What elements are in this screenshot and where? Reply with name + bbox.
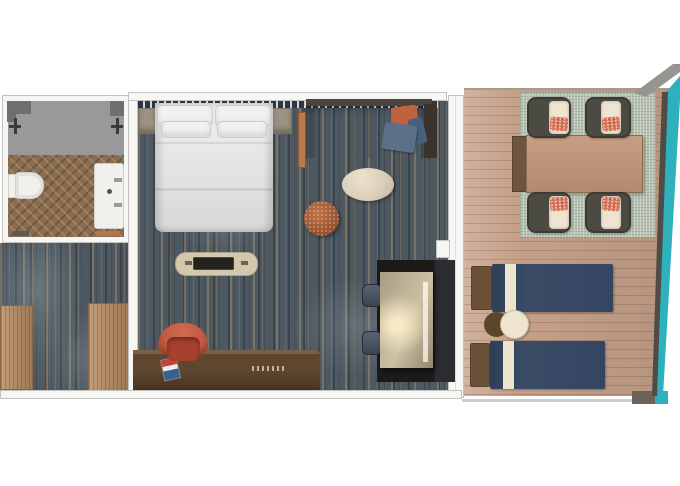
side-table-cream bbox=[500, 310, 529, 339]
vanity-drain bbox=[107, 189, 112, 194]
nook-chair-lower bbox=[362, 331, 382, 355]
nightstand-left bbox=[138, 108, 156, 134]
balcony-dining-table bbox=[526, 135, 643, 193]
railing-base-teal bbox=[655, 391, 668, 404]
deck-edge-line bbox=[462, 399, 634, 402]
sofa-dark-arm bbox=[424, 104, 437, 158]
nook-chair-upper bbox=[362, 284, 382, 307]
shower-fixture-left bbox=[9, 118, 21, 134]
ottoman bbox=[304, 201, 339, 236]
desk-accessories bbox=[252, 366, 286, 371]
nook-table-highlight bbox=[423, 282, 428, 362]
vanity-faucet-bottom bbox=[114, 203, 122, 207]
tv-screen bbox=[193, 257, 234, 270]
chair-pillow bbox=[601, 116, 620, 132]
vanity-sink bbox=[94, 163, 124, 229]
nightstand-right bbox=[272, 108, 292, 134]
lounger-headrest-lower bbox=[470, 343, 490, 387]
coffee-table bbox=[342, 168, 394, 201]
bathroom-threshold bbox=[96, 231, 120, 236]
wall-bottom bbox=[0, 390, 462, 399]
toilet bbox=[15, 172, 44, 199]
chair-pillow bbox=[601, 196, 620, 212]
desk-chair-seat bbox=[167, 337, 200, 361]
bed-pillow bbox=[161, 121, 211, 138]
shower-corner-right bbox=[110, 101, 124, 116]
sofa-pillow-blue bbox=[381, 122, 417, 153]
chair-pillow bbox=[550, 196, 569, 211]
wardrobe-right bbox=[88, 303, 130, 391]
tv-soundbar-right bbox=[241, 261, 248, 265]
chair-pillow bbox=[550, 116, 569, 131]
lounger-headrest-upper bbox=[471, 266, 492, 310]
wardrobe-left bbox=[0, 305, 33, 390]
lounger-stripe-upper bbox=[505, 264, 516, 312]
lounger-stripe-lower bbox=[503, 341, 514, 389]
duvet-seam bbox=[155, 142, 273, 144]
duvet-fold bbox=[155, 188, 273, 191]
bath-mat bbox=[13, 231, 29, 236]
wood-trim-strip bbox=[298, 112, 306, 168]
stateroom-floor-plan bbox=[0, 0, 680, 486]
bed-pillow bbox=[217, 121, 267, 138]
tv-soundbar-left bbox=[185, 261, 192, 265]
vanity-faucet-top bbox=[114, 178, 122, 182]
wall-notch bbox=[436, 240, 450, 258]
shower-fixture-right bbox=[111, 118, 123, 134]
